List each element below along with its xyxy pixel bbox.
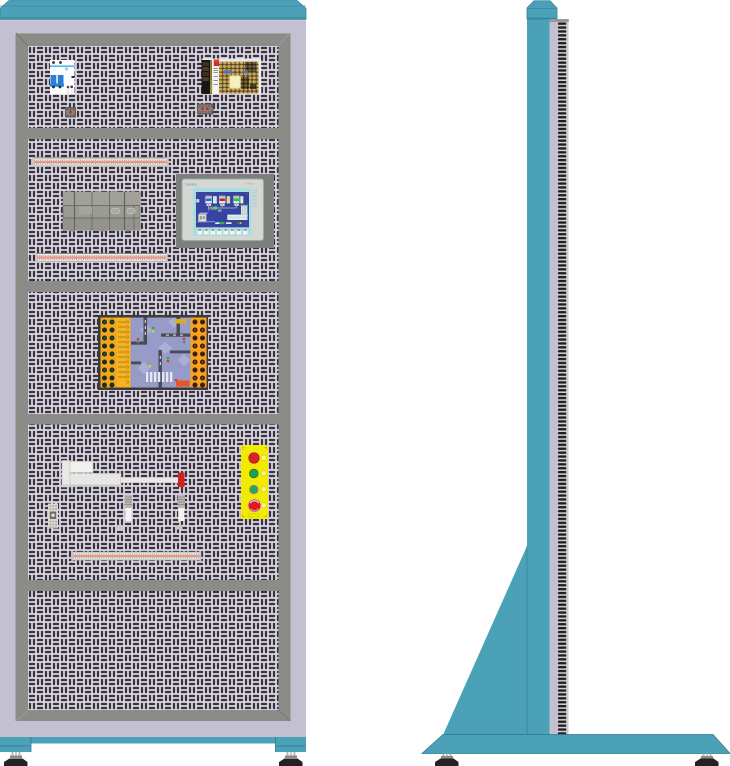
svg-text:SIEMENS: SIEMENS [186,183,198,187]
svg-text:TOUCH: TOUCH [251,189,257,207]
svg-text:KTP1000: KTP1000 [246,184,254,186]
